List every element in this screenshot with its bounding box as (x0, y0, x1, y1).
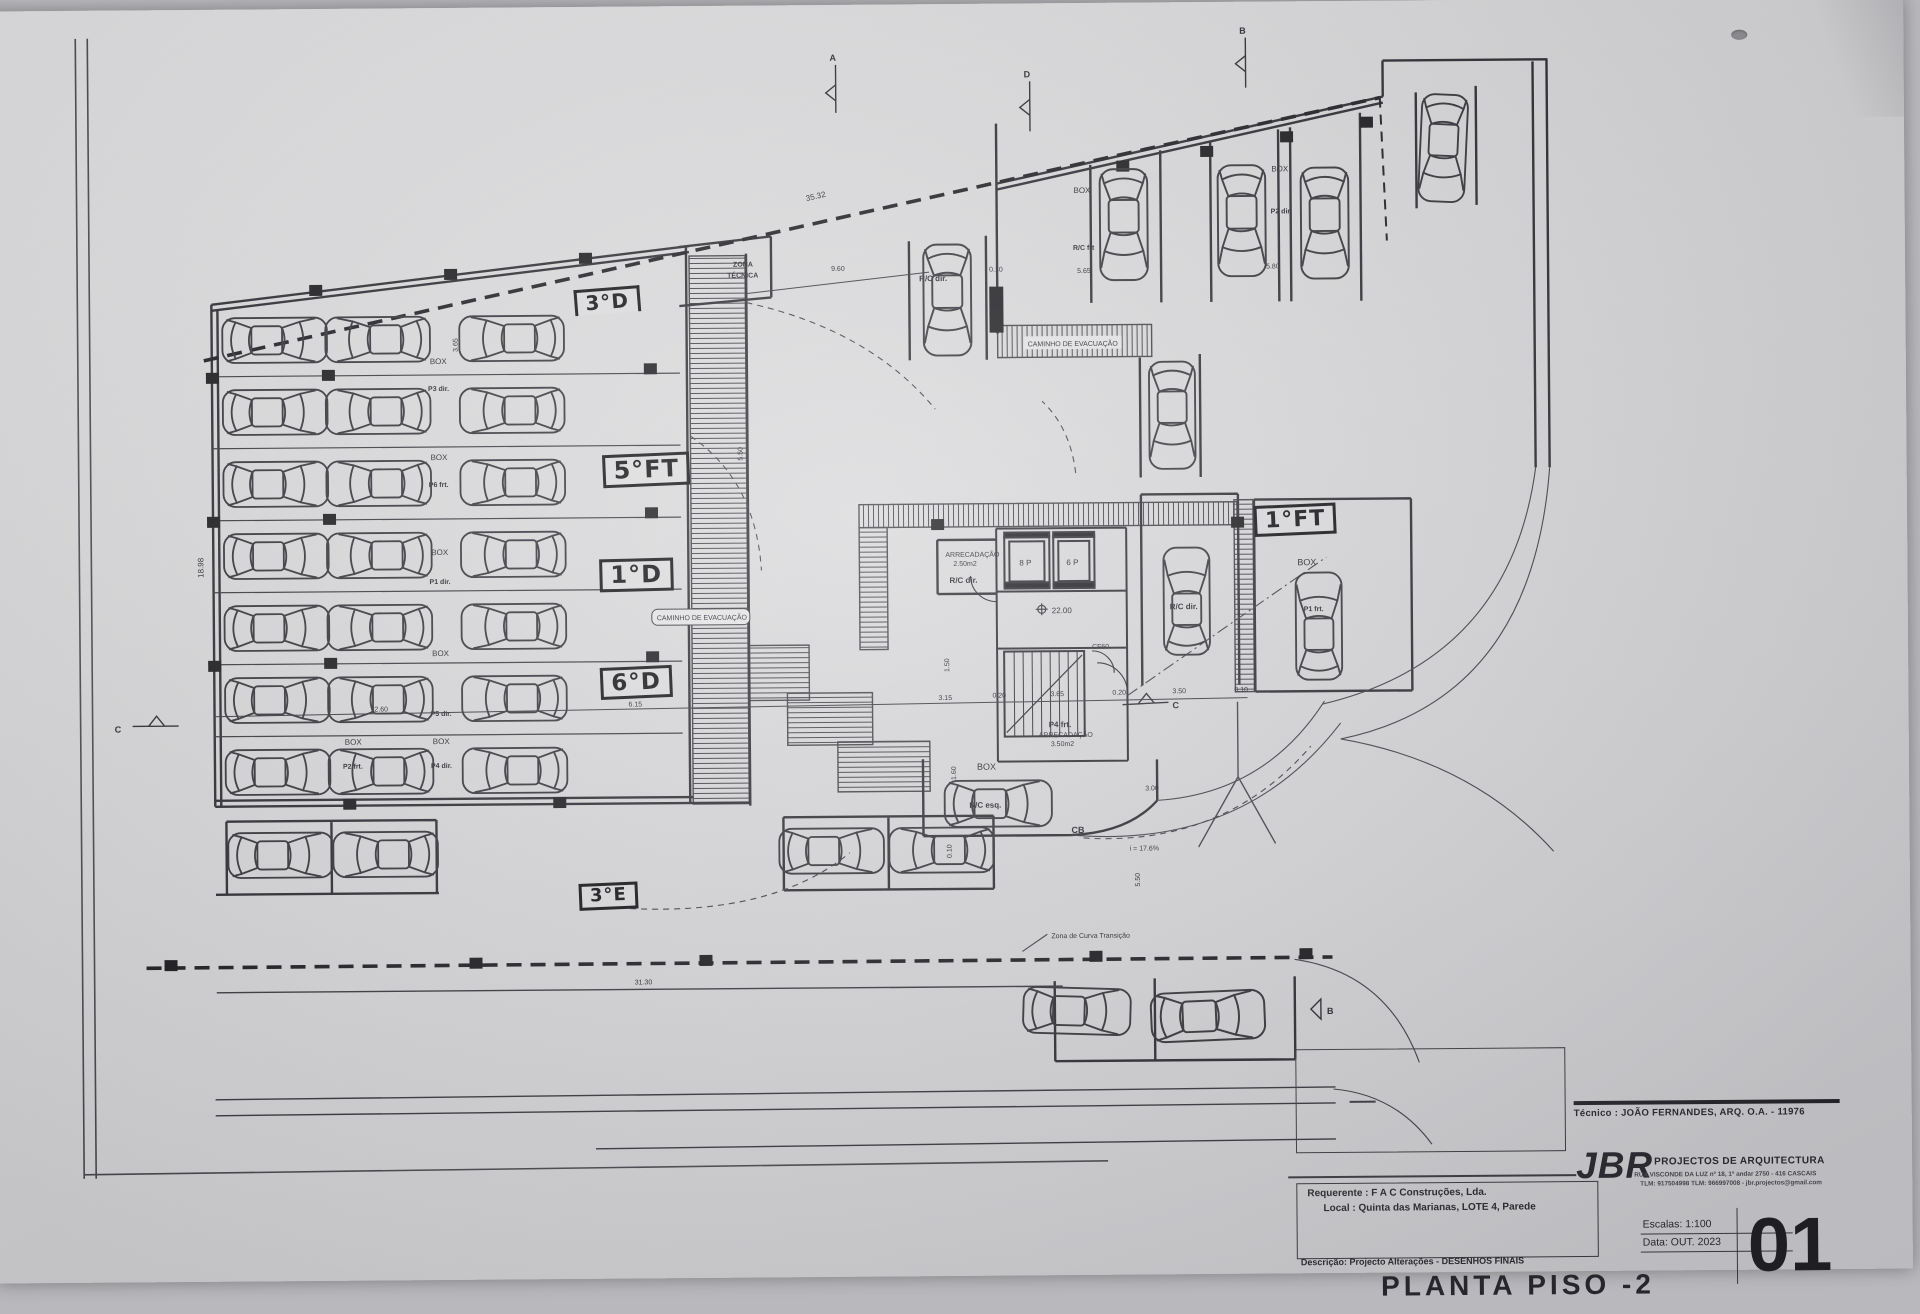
floor-plan: 35.32 9.60 0.10 5.65 5.80 18.98 12.60 6.… (0, 0, 1913, 1284)
car-icon (226, 749, 331, 795)
car-icon (463, 748, 568, 794)
requerente-label: Requerente : (1307, 1188, 1368, 1199)
marker-a: A (829, 53, 836, 63)
car-icon (923, 244, 971, 355)
pillar (164, 960, 177, 971)
firm-contacts: TLM: 917504998 TLM: 966997008 - jbr.proj… (1640, 1179, 1822, 1187)
descricao-value: Projecto Alterações - DESENHOS FINAIS (1349, 1256, 1524, 1267)
pillar (324, 658, 337, 669)
pillar (644, 363, 657, 374)
box-row-1: BOX (430, 357, 448, 366)
p-row-3: P1 dir. (430, 579, 451, 586)
car-icon (462, 676, 567, 722)
revision-box (1295, 1047, 1566, 1153)
photographed-drawing-sheet: 35.32 9.60 0.10 5.65 5.80 18.98 12.60 6.… (0, 0, 1913, 1284)
dim-3-65: 3.65 (1050, 691, 1064, 698)
pillar (1231, 517, 1244, 528)
arrecadacao-2-area: 3.50m2 (1051, 741, 1075, 748)
car-icon (228, 832, 333, 878)
car-icon (1023, 987, 1131, 1036)
box-row-2: BOX (431, 453, 449, 462)
parking-row-labels: BOX P3 dir. BOX P6 frt. BOX P1 dir. BOX … (340, 357, 452, 771)
firm-tagline: PROJECTOS DE ARQUITECTURA (1654, 1155, 1825, 1167)
pillar (1360, 117, 1373, 128)
car-icon (1418, 94, 1469, 203)
car-icon (224, 533, 329, 579)
drawing-title: PLANTA PISO -2 (1381, 1268, 1655, 1302)
rc-dir-storage: R/C dir. (949, 576, 977, 585)
box-row-5: BOX (433, 737, 451, 746)
handwritten-6d-label: 6°D (600, 665, 673, 700)
descricao-label: Descrição: (1301, 1257, 1347, 1267)
data-label: Data: (1643, 1236, 1668, 1248)
car-icon (328, 677, 433, 723)
elevator-8p-label: 8 P (1019, 558, 1031, 567)
box-label-center: BOX (977, 762, 996, 772)
tecnico-line: Técnico : JOÃO FERNANDES, ARQ. O.A. - 11… (1574, 1099, 1840, 1119)
pillar (469, 958, 482, 969)
car-icon (1301, 167, 1349, 278)
requerente-row: Requerente : F A C Construções, Lda. (1307, 1186, 1597, 1199)
dim-35-32: 35.32 (805, 190, 827, 203)
title-rule (1288, 1174, 1576, 1178)
car-icon (223, 461, 328, 507)
rc-frt-label: R/C frt (1073, 245, 1095, 252)
p-row-4: P5 dir. (431, 711, 452, 718)
dim-0-20b: 0.20 (1112, 690, 1126, 697)
pillar (323, 514, 336, 525)
dim-0-10: 0.10 (989, 267, 1003, 274)
escalas-value: 1:100 (1685, 1218, 1711, 1230)
escalas-label: Escalas: (1643, 1218, 1683, 1230)
box-row-4: BOX (432, 649, 450, 658)
car-icon (326, 461, 431, 507)
pillar (1200, 146, 1213, 157)
structural-pillars (158, 117, 1380, 972)
requerente-value: F A C Construções, Lda. (1371, 1187, 1486, 1199)
dim-5-50: 5.50 (1135, 873, 1142, 887)
car-icon (461, 604, 566, 650)
car-icon (222, 317, 327, 363)
marker-c-left: C (115, 725, 122, 735)
pillar (343, 799, 356, 810)
cf60-door-label: CF60 (1092, 644, 1109, 651)
zona-tecnica-label2: TÉCNICA (727, 270, 758, 279)
car-icon (223, 389, 328, 435)
box-row-3: BOX (431, 548, 449, 557)
handwritten-1ft-label: 1°FT (1253, 503, 1337, 538)
car-icon (1150, 989, 1265, 1042)
marker-c-right: C (1172, 700, 1179, 710)
local-row: Local : Quinta das Marianas, LOTE 4, Par… (1307, 1201, 1597, 1214)
handwritten-1d-label: 1°D (599, 558, 673, 593)
car-icon (460, 460, 565, 506)
box-label-1ft: BOX (1297, 557, 1316, 567)
dim-5-65: 5.65 (1077, 268, 1091, 275)
parked-cars (220, 93, 1475, 1050)
curva-transicao-label: Zona de Curva Transição (1051, 933, 1130, 941)
wall-pier (989, 287, 1003, 333)
car-icon (460, 388, 565, 434)
p-row-1: P3 dir. (428, 386, 449, 393)
dim-3-50: 3.50 (1172, 688, 1186, 695)
sheet-number: 01 (1736, 1207, 1832, 1284)
car-icon (461, 532, 566, 578)
pillar (206, 373, 219, 384)
drive-guides (625, 296, 1556, 1150)
pillar (931, 519, 944, 530)
p1-frt-label: P1 frt. (1304, 606, 1324, 613)
marker-b-top: B (1239, 26, 1246, 36)
dim-3-00: 3.00 (1145, 785, 1159, 792)
descricao-row: Descrição: Projecto Alterações - DESENHO… (1301, 1256, 1524, 1268)
project-fields: Requerente : F A C Construções, Lda. Loc… (1296, 1181, 1599, 1259)
dim-0-20: 0.20 (992, 693, 1006, 700)
car-icon (889, 827, 994, 873)
pillar (699, 955, 712, 966)
sheet-frame (75, 31, 1108, 1179)
pillar (646, 651, 659, 662)
box-row-6: BOX (345, 738, 363, 747)
handwritten-5ft-label: 5°FT (602, 452, 691, 489)
revision-tick (1350, 1101, 1376, 1103)
car-icon (333, 832, 438, 878)
arrecadacao-1: ARRECADAÇÃO (945, 550, 1000, 559)
car-icon (779, 828, 884, 874)
car-icon (1149, 362, 1196, 469)
car-icon (326, 389, 431, 435)
p2-dir-label: P2 dir. (1271, 208, 1292, 215)
pillar (553, 797, 566, 808)
car-icon (329, 749, 434, 795)
marker-d: D (1024, 69, 1031, 79)
box-label-topright: BOX (1271, 164, 1289, 173)
p4-frt-label: P4 frt. (1049, 720, 1072, 729)
box-label-top: BOX (1073, 186, 1091, 195)
car-icon (327, 533, 432, 579)
car-icon (1163, 547, 1210, 654)
local-value: Quinta das Marianas, LOTE 4, Parede (1358, 1201, 1535, 1213)
dim-18-98: 18.98 (196, 557, 205, 578)
ramp-slope-label: i = 17.6% (1130, 845, 1159, 852)
dim-1-50: 1.50 (944, 658, 951, 672)
street-lines (215, 984, 1336, 1152)
title-block: Técnico : JOÃO FERNANDES, ARQ. O.A. - 11… (1287, 1039, 1855, 1279)
pillar (645, 507, 658, 518)
rc-dir-stall-car: R/C dir. (1170, 602, 1198, 611)
dim-0-10b: 0.10 (1234, 687, 1248, 694)
data-value: OUT. 2023 (1671, 1236, 1721, 1248)
car-icon (459, 316, 564, 362)
pillar (207, 517, 220, 528)
pillar (1299, 948, 1312, 959)
pillar (1089, 951, 1102, 962)
arrecadacao-1-area: 2.50m2 (953, 561, 977, 568)
level-22-00: 22.00 (1052, 606, 1073, 615)
pillar (309, 285, 322, 296)
dim-5-80: 5.80 (1266, 263, 1280, 270)
pillar (444, 269, 457, 280)
dim-1-60: 1.60 (951, 766, 958, 780)
car-icon (224, 605, 329, 651)
dim-6-15: 6.15 (628, 701, 642, 708)
pillar (208, 661, 221, 672)
paper-corner-shadow (1813, 0, 1904, 117)
firm-address: RUA VISCONDE DA LUZ nº 18, 1º andar 2750… (1634, 1170, 1816, 1178)
dim-0-10v: 0.10 (947, 844, 954, 858)
dim-3-15: 3.15 (938, 695, 952, 702)
handwritten-3d-label: 3°D (573, 285, 640, 316)
paper-mark (1731, 30, 1747, 40)
car-icon (327, 605, 432, 651)
pillar (322, 370, 335, 381)
dim-9-60: 9.60 (831, 266, 845, 273)
pillar (1280, 131, 1293, 142)
car-icon (1100, 169, 1148, 280)
car-icon (1218, 165, 1266, 276)
dim-5-50v: 5.50 (737, 447, 744, 461)
elevator-6p-label: 6 P (1066, 558, 1078, 567)
zona-tecnica-label: ZONA (733, 262, 753, 269)
local-label: Local : (1323, 1203, 1355, 1214)
car-icon (1296, 572, 1343, 679)
marker-cb: CB (1071, 825, 1085, 835)
marker-b-bottom: B (1327, 1006, 1334, 1016)
dim-31-30: 31.30 (635, 979, 653, 986)
pillar (579, 253, 592, 264)
arrecadacao-2: ARRECADAÇÃO (1039, 730, 1094, 739)
handwritten-3e-label: 3°E (578, 881, 638, 910)
